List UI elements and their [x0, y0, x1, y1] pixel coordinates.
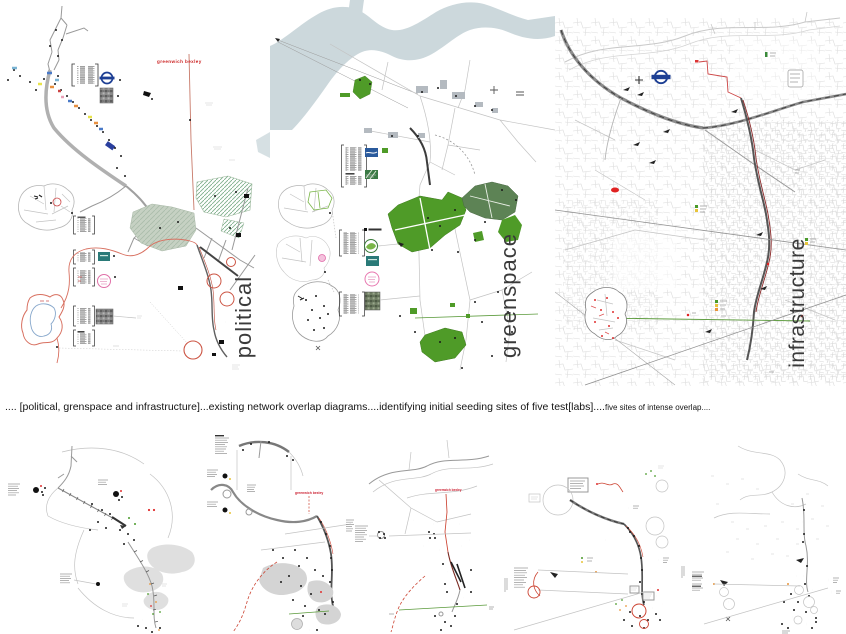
legend-cluster: [428, 532, 435, 541]
micro-vertical-text: [682, 566, 684, 578]
caption-row: .... [political, grenspace and infrastru…: [5, 397, 843, 415]
left-annotation: [692, 572, 735, 621]
labs-cluster: [616, 584, 662, 628]
london-minimap-green: [278, 184, 334, 228]
rail-branch-sketch: [48, 6, 88, 72]
route: [796, 498, 809, 596]
logo-environment-agency: [365, 148, 378, 157]
overlap-diagram-3: greenwich bexley: [353, 434, 511, 634]
overlap-diagram-5: [686, 434, 846, 634]
annotation-block: [355, 526, 377, 541]
faint-river: [714, 446, 828, 518]
logo-pink-roundel-2: [365, 272, 379, 286]
micro-vertical-text: [505, 578, 507, 592]
legend-yellow: [207, 502, 230, 513]
infrastructure-title: infrastructure: [786, 223, 812, 383]
gray-district-blobs: [259, 563, 341, 624]
green-hatched-areas: [130, 176, 252, 251]
legend-yellow: [207, 470, 230, 479]
red-route: [445, 494, 448, 552]
note-box: [788, 70, 803, 87]
caption-small: five sites of intense overlap....: [605, 403, 710, 412]
gray-district-blobs: [124, 545, 195, 610]
building-clusters: [364, 80, 498, 138]
river-sliver: [256, 132, 270, 158]
presentation-board: greenwich bexley: [0, 0, 846, 634]
site-circle: [632, 604, 646, 618]
motorway: [570, 500, 624, 524]
greenspace-title: greenspace: [496, 248, 520, 358]
legend-cluster: [98, 480, 122, 500]
right-cluster: [784, 576, 818, 618]
rail-station-block: [105, 141, 115, 150]
overlap-diagram-2: greenwich bexley: [203, 430, 355, 632]
photo-thumbnail-2: [96, 309, 142, 324]
london-minimap-outline: [276, 236, 330, 282]
green-parks: [340, 76, 522, 362]
photo-thumbnail-green: [365, 292, 420, 310]
logo-teal: [98, 252, 114, 261]
legend-cluster-lower: [60, 574, 100, 586]
political-map: greenwich bexley: [0, 0, 270, 390]
legend-cluster: [378, 532, 386, 542]
site-circle: [184, 341, 202, 359]
river-sketch: [369, 440, 493, 498]
annotation-blocks: [74, 216, 95, 346]
thames-river: [270, 0, 555, 130]
connector-box: [514, 568, 628, 598]
logo-green-stripe: [365, 170, 378, 179]
far-right-legend: [828, 578, 841, 593]
political-title: political: [231, 262, 255, 372]
bottom-cluster: [782, 616, 816, 633]
red-dashed-boundary: [391, 576, 425, 632]
london-boroughs-minimap: [18, 184, 74, 230]
overlap-diagram-1: [2, 434, 202, 634]
boundary-label: greenwich bexley: [157, 59, 202, 64]
logo-groundwork-text: [364, 228, 382, 231]
annotation-blocks: [340, 145, 367, 316]
logo-pink-roundel: [98, 275, 116, 288]
legend-text-block: [72, 64, 98, 86]
note-box: [568, 478, 588, 492]
legend-cluster: [8, 484, 45, 495]
logo-teal-2: [366, 256, 379, 266]
overlap-diagram-4: [512, 434, 690, 634]
underground-roundel-icon: [100, 73, 121, 84]
boundary-label-small: greenwich bexley: [435, 488, 462, 492]
annotation-block: [215, 435, 229, 453]
black-landmark: [143, 91, 151, 97]
boundary-label-small: greenwich bexley: [295, 491, 323, 495]
caption-main: .... [political, grenspace and infrastru…: [5, 401, 605, 413]
borough-outline-minimap: [585, 288, 627, 340]
photo-thumbnail: [100, 88, 118, 103]
